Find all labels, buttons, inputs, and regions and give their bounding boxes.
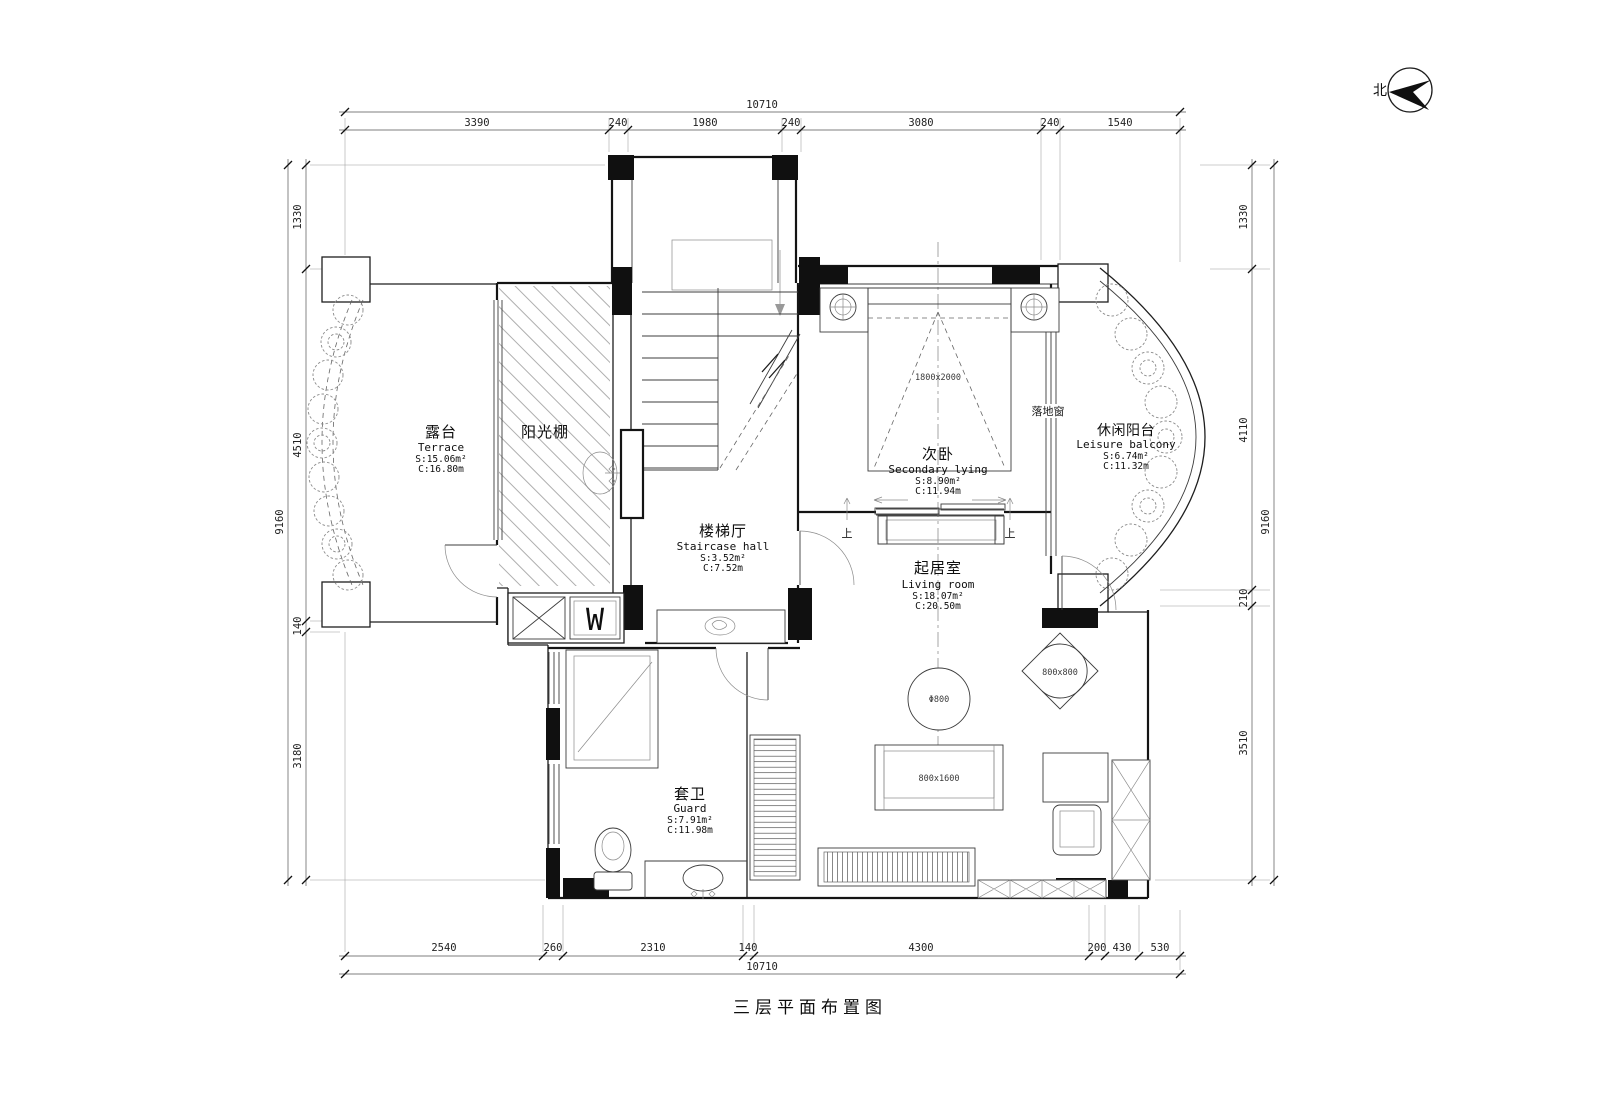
balcony-c: C:11.32m bbox=[1103, 461, 1149, 472]
floor-window-annotation: 落地窗 bbox=[1020, 404, 1076, 418]
dim-bottom-seg: 4300 bbox=[908, 942, 933, 954]
dim-top-seg: 1540 bbox=[1107, 117, 1132, 129]
terrace-name-en: Terrace bbox=[418, 441, 464, 454]
toilet bbox=[594, 828, 632, 890]
dim-top-seg: 3390 bbox=[464, 117, 489, 129]
hall-shelf bbox=[657, 610, 785, 643]
dim-left-seg: 140 bbox=[292, 617, 304, 636]
living-name-cn: 起居室 bbox=[914, 559, 962, 577]
terrace-name-cn: 露台 bbox=[425, 423, 457, 441]
up-label-right: 上 bbox=[1005, 527, 1016, 540]
balcony-name-cn: 休闲阳台 bbox=[1097, 423, 1155, 439]
bedroom-name-en: Secondary lying bbox=[888, 463, 987, 476]
dim-top-seg: 240 bbox=[1041, 117, 1060, 129]
dim-right-seg: 4110 bbox=[1238, 417, 1250, 442]
dim-bottom-total: 10710 bbox=[746, 961, 778, 973]
bedroom-c: C:11.94m bbox=[915, 486, 961, 497]
dim-left-seg: 3180 bbox=[292, 743, 304, 768]
dim-bottom-seg: 2310 bbox=[640, 942, 665, 954]
wardrobe bbox=[1112, 760, 1150, 880]
dim-bottom-seg: 140 bbox=[739, 942, 758, 954]
shower bbox=[566, 650, 658, 768]
round-table: Φ800 bbox=[908, 668, 970, 730]
sunroom-name-cn: 阳光棚 bbox=[521, 423, 569, 441]
north-label: 北 bbox=[1373, 83, 1387, 99]
dim-left-seg: 4510 bbox=[292, 432, 304, 457]
floor-plan-drawing: 10710 3390 240 1980 240 3080 240 1540 25… bbox=[0, 0, 1600, 1105]
hall-c: C:7.52m bbox=[703, 563, 743, 574]
coffee-table-size-label: 800x1600 bbox=[919, 774, 960, 784]
round-table-size-label: Φ800 bbox=[929, 695, 949, 705]
balcony-name-en: Leisure balcony bbox=[1076, 438, 1176, 451]
dim-bottom-seg: 430 bbox=[1113, 942, 1132, 954]
dim-left-seg: 1330 bbox=[292, 204, 304, 229]
hall-name-cn: 楼梯厅 bbox=[699, 522, 747, 540]
striped-bench bbox=[818, 848, 975, 886]
dim-top-seg: 3080 bbox=[908, 117, 933, 129]
dim-bottom-seg: 530 bbox=[1151, 942, 1170, 954]
dim-bottom-seg: 260 bbox=[544, 942, 563, 954]
guard-name-en: Guard bbox=[673, 802, 706, 815]
dim-top-seg: 240 bbox=[609, 117, 628, 129]
drawing-title: 三层平面布置图 bbox=[733, 998, 887, 1018]
laundry-cabinets: W bbox=[508, 593, 624, 643]
guard-c: C:11.98m bbox=[667, 825, 713, 836]
dim-right-total: 9160 bbox=[1260, 509, 1272, 534]
dim-left-total: 9160 bbox=[274, 509, 286, 534]
dim-right-seg: 3510 bbox=[1238, 730, 1250, 755]
living-name-en: Living room bbox=[902, 578, 975, 591]
room-label-sunroom: 阳光棚 bbox=[521, 423, 569, 441]
dim-top-seg: 1980 bbox=[692, 117, 717, 129]
dim-bottom-seg: 2540 bbox=[431, 942, 456, 954]
bed-size-label: 1800x2000 bbox=[915, 373, 961, 383]
dim-top-total: 10710 bbox=[746, 99, 778, 111]
bedroom-name-cn: 次卧 bbox=[922, 445, 954, 463]
washing-machine-label: W bbox=[586, 603, 605, 638]
bottom-cabinet-row bbox=[978, 880, 1106, 898]
floor-window-label: 落地窗 bbox=[1032, 404, 1065, 418]
hall-name-en: Staircase hall bbox=[677, 540, 770, 553]
dim-bottom-seg: 200 bbox=[1088, 942, 1107, 954]
terrace-c: C:16.80m bbox=[418, 464, 464, 475]
living-c: C:20.50m bbox=[915, 601, 961, 612]
corner-chair-size-label: 800x800 bbox=[1042, 668, 1078, 678]
guard-name-cn: 套卫 bbox=[674, 785, 706, 803]
dim-right-seg: 210 bbox=[1238, 589, 1250, 608]
coffee-table: 800x1600 bbox=[875, 745, 1003, 810]
dim-right-seg: 1330 bbox=[1238, 204, 1250, 229]
up-label-left: 上 bbox=[842, 527, 853, 540]
dim-top-seg: 240 bbox=[782, 117, 801, 129]
hall-dresser bbox=[750, 735, 800, 880]
